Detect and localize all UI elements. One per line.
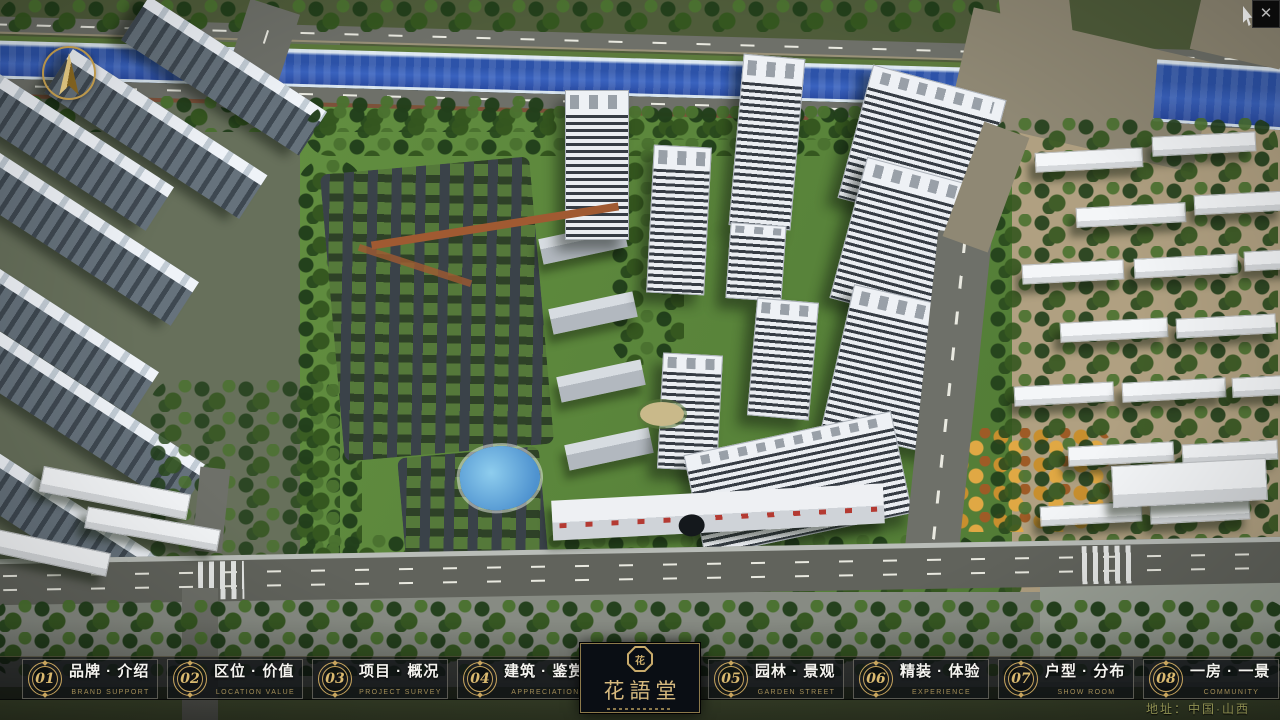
nav-label-en: GARDEN STREET xyxy=(758,689,836,696)
nav-label-zh: 户型 · 分布 xyxy=(1045,663,1125,680)
nav-number-badge: 07 xyxy=(1004,662,1038,696)
nav-item-brand[interactable]: 01 品牌 · 介绍 BRAND SUPPORT xyxy=(22,659,158,699)
presentation-window: ✕ 01 品牌 · 介绍 BRAND SUPPORT 02 区位 · 价值 LO… xyxy=(0,0,1280,720)
brand-subtitle-line xyxy=(607,708,673,710)
nav-label-zh: 园林 · 景观 xyxy=(755,663,835,680)
nav-label-zh: 精装 · 体验 xyxy=(900,663,980,680)
highrise-tower xyxy=(725,222,786,302)
nav-label-zh: 一房 · 一景 xyxy=(1190,663,1270,680)
nav-item-garden[interactable]: 05 园林 · 景观 GARDEN STREET xyxy=(708,659,844,699)
nav-group-right: 05 园林 · 景观 GARDEN STREET 06 精装 · 体验 EXPE… xyxy=(708,639,1279,699)
courtyard-houses xyxy=(320,156,554,461)
nav-label-zh: 建筑 · 鉴赏 xyxy=(504,663,584,680)
highrise-tower xyxy=(747,298,819,421)
nav-number-badge: 08 xyxy=(1149,662,1183,696)
nav-label-en: BRAND SUPPORT xyxy=(71,689,149,696)
nav-number-badge: 05 xyxy=(714,662,748,696)
highrise-tower xyxy=(565,90,629,240)
nav-label-en: LOCATION VALUE xyxy=(216,689,295,696)
garden-plaza xyxy=(640,402,684,426)
nav-item-interior[interactable]: 06 精装 · 体验 EXPERIENCE xyxy=(853,659,989,699)
close-button[interactable]: ✕ xyxy=(1252,0,1280,28)
nav-item-floorplan[interactable]: 07 户型 · 分布 SHOW ROOM xyxy=(998,659,1134,699)
nav-number-badge: 04 xyxy=(463,662,497,696)
nav-label-en: COMMUNITY xyxy=(1204,689,1260,696)
aerial-site-render xyxy=(0,0,1280,720)
nav-number-badge: 01 xyxy=(28,662,62,696)
nav-label-en: SHOW ROOM xyxy=(1057,689,1115,696)
nav-label-zh: 区位 · 价值 xyxy=(214,663,294,680)
nav-item-location[interactable]: 02 区位 · 价值 LOCATION VALUE xyxy=(167,659,303,699)
compass-needle-icon xyxy=(56,53,82,95)
nav-group-left: 01 品牌 · 介绍 BRAND SUPPORT 02 区位 · 价值 LOCA… xyxy=(22,639,593,699)
nav-item-project[interactable]: 03 项目 · 概况 PROJECT SURVEY xyxy=(312,659,448,699)
row-building xyxy=(1244,248,1280,271)
nav-label-en: EXPERIENCE xyxy=(912,689,971,696)
nav-label-zh: 品牌 · 介绍 xyxy=(69,663,149,680)
nav-number-badge: 02 xyxy=(173,662,207,696)
nav-label-zh: 项目 · 概况 xyxy=(359,663,439,680)
highrise-tower xyxy=(646,145,712,296)
crosswalk-east xyxy=(1082,545,1133,584)
compass-north-indicator xyxy=(42,46,96,100)
nav-number-badge: 06 xyxy=(859,662,893,696)
interchange-north-leg xyxy=(998,0,1076,71)
nav-item-architecture[interactable]: 04 建筑 · 鉴赏 APPRECIATION xyxy=(457,659,593,699)
nav-number-badge: 03 xyxy=(318,662,352,696)
nav-label-en: APPRECIATION xyxy=(511,689,579,696)
brand-logo-panel[interactable]: 花 花語堂 xyxy=(580,643,700,713)
brand-title: 花語堂 xyxy=(599,675,682,705)
row-building xyxy=(1232,374,1280,398)
row-building-large xyxy=(1111,458,1268,508)
project-address: 地址：中国·山西 xyxy=(1146,700,1250,717)
nav-label-en: PROJECT SURVEY xyxy=(359,689,442,696)
brand-seal-icon: 花 xyxy=(627,646,653,672)
nav-item-views[interactable]: 08 一房 · 一景 COMMUNITY xyxy=(1143,659,1279,699)
